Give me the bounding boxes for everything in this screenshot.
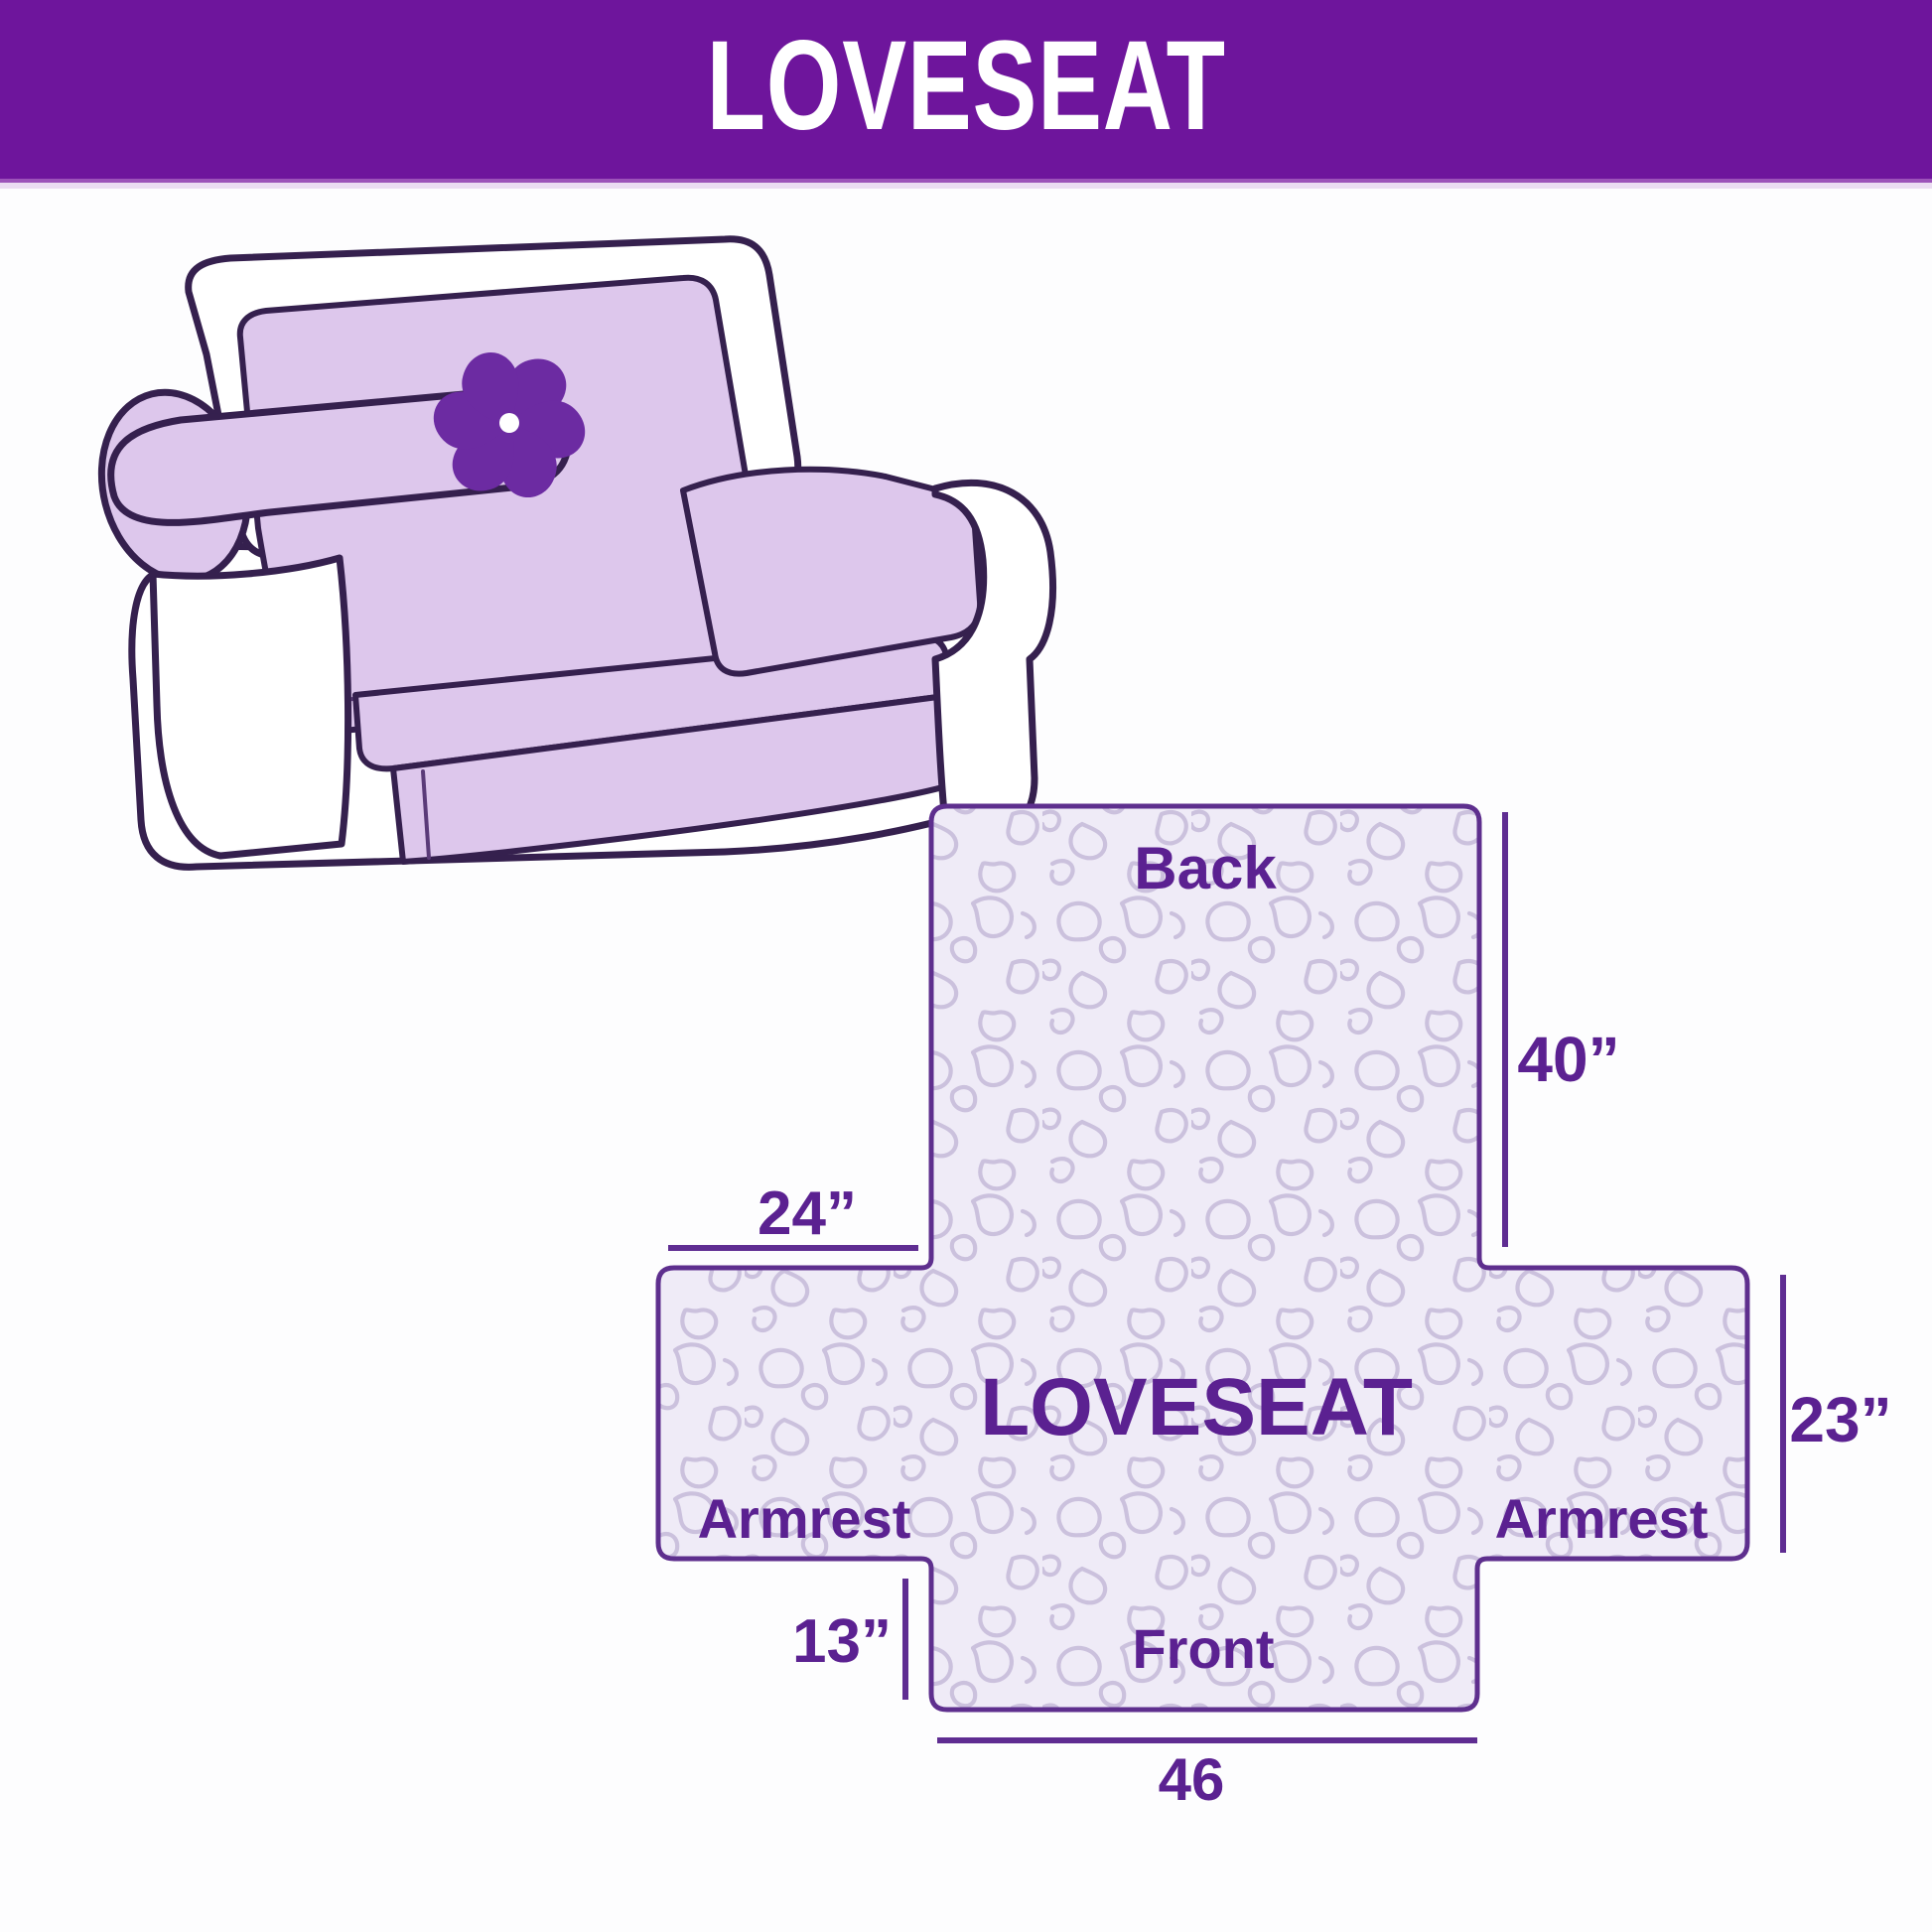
dim-24-label: 24”: [758, 1179, 857, 1248]
front-section-label: Front: [1132, 1617, 1274, 1680]
infographic-canvas: LOVESEAT: [0, 0, 1932, 1932]
back-section-label: Back: [1134, 835, 1277, 901]
dim-23-label: 23”: [1789, 1384, 1891, 1455]
armrest-left-label: Armrest: [698, 1487, 911, 1550]
cover-measurement-diagram: Back LOVESEAT Armrest Armrest Front 40” …: [0, 0, 1932, 1932]
dim-46-label: 46: [1159, 1746, 1225, 1813]
armrest-right-label: Armrest: [1495, 1487, 1709, 1550]
dim-40-label: 40”: [1517, 1024, 1619, 1095]
dim-13-label: 13”: [792, 1607, 892, 1676]
center-product-label: LOVESEAT: [980, 1362, 1413, 1452]
cover-cross-shape: [658, 806, 1747, 1710]
